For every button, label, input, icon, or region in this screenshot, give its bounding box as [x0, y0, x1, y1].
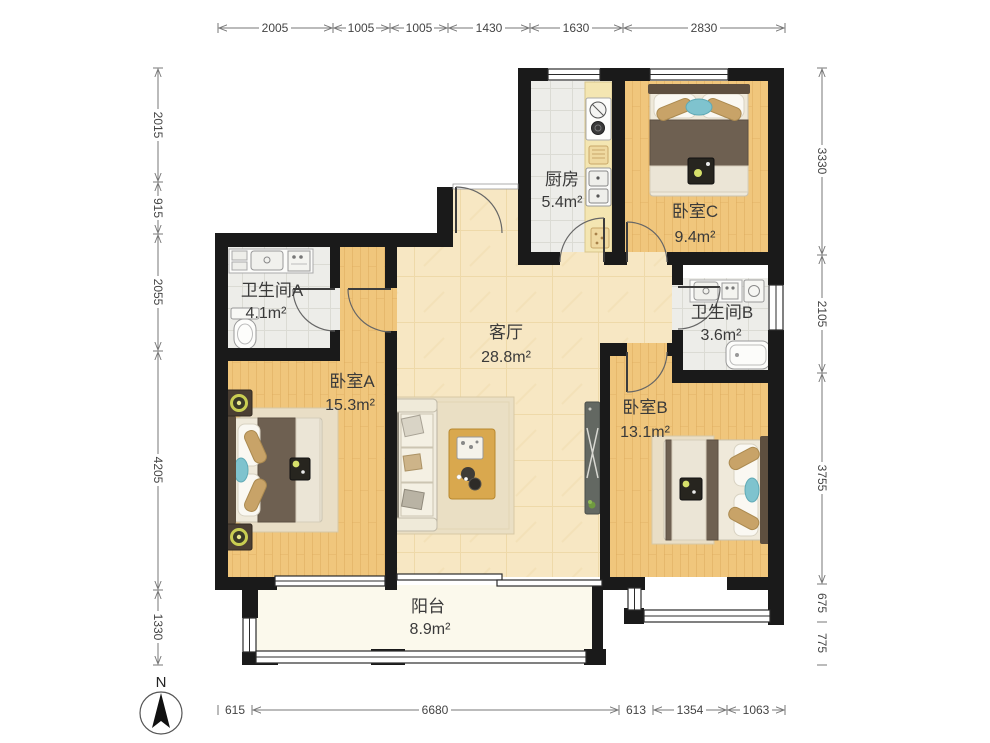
- dim-top-5: 1630: [563, 21, 590, 35]
- bath-b-area: 3.6m²: [701, 327, 743, 344]
- bedroom-b-area: 13.1m²: [620, 424, 670, 441]
- kitchen-counter: [585, 82, 612, 252]
- bath-a-door-gap: [330, 288, 340, 330]
- bedroom-a-balcony-window: [275, 576, 385, 586]
- dim-left-2: 915: [151, 198, 165, 218]
- balcony-left-window: [243, 618, 256, 652]
- nightstand-icon: [226, 524, 252, 550]
- hallway-floor: [602, 252, 672, 343]
- bath-a-label: 卫生间A: [241, 281, 304, 300]
- dim-bottom-3: 613: [626, 703, 646, 717]
- bedroom-a-label: 卧室A: [329, 372, 375, 391]
- entry-threshold: [453, 184, 518, 189]
- bath-b-window: [769, 285, 783, 330]
- bedroom-b-door-gap: [627, 343, 667, 356]
- dimension-right: 3330 2105 3755 675 775: [815, 68, 829, 665]
- tv-panel: [585, 402, 600, 514]
- dim-bottom-2: 6680: [422, 703, 449, 717]
- bed-bedroom-c: [648, 84, 750, 196]
- nightstand-icon: [226, 390, 252, 416]
- dim-left-5: 1330: [151, 614, 165, 641]
- dim-right-5: 775: [815, 633, 829, 653]
- balcony-front-window: [256, 651, 586, 663]
- balcony-area: 8.9m²: [410, 621, 452, 638]
- dimension-bottom: 615 6680 613 1354 1063: [218, 703, 785, 717]
- bath-b-door-gap: [672, 285, 683, 330]
- dim-right-1: 3330: [815, 148, 829, 175]
- living-label: 客厅: [489, 323, 523, 342]
- compass-north-label: N: [156, 674, 167, 691]
- bedroom-c-window: [650, 69, 728, 80]
- compass: N: [140, 674, 182, 734]
- dim-left-1: 2015: [151, 112, 165, 139]
- balcony-floor: [245, 585, 592, 652]
- kitchen-label: 厨房: [545, 170, 579, 189]
- bedroom-b-label: 卧室B: [622, 398, 667, 417]
- kitchen-sink-icon: [586, 168, 611, 206]
- bed-bedroom-a: [226, 390, 338, 550]
- bedroom-a-area: 15.3m²: [325, 397, 375, 414]
- coffee-table: [449, 429, 495, 499]
- bedroom-a-door-gap: [385, 288, 397, 331]
- compass-needle-icon: [152, 693, 170, 728]
- dim-top-2: 1005: [348, 21, 375, 35]
- balcony-label: 阳台: [411, 597, 445, 616]
- floorplan-svg: 厨房 5.4m² 卧室C 9.4m² 卫生间A 4.1m² 客厅 28.8m² …: [0, 0, 990, 743]
- dim-left-3: 2055: [151, 279, 165, 306]
- dim-top-3: 1005: [406, 21, 433, 35]
- dim-bottom-4: 1354: [677, 703, 704, 717]
- counter-board-icon: [591, 228, 609, 248]
- dim-bottom-5: 1063: [743, 703, 770, 717]
- dimension-top: 2005 1005 1005 1430 1630 2830: [218, 21, 785, 35]
- dim-top-6: 2830: [691, 21, 718, 35]
- dim-left-4: 4205: [151, 457, 165, 484]
- cutting-board-icon: [589, 146, 608, 164]
- stove-icon: [586, 98, 611, 140]
- dim-bottom-1: 615: [225, 703, 245, 717]
- dim-top-4: 1430: [476, 21, 503, 35]
- living-area: 28.8m²: [481, 349, 531, 366]
- bedroom-c-area: 9.4m²: [675, 229, 717, 246]
- bedroom-c-label: 卧室C: [672, 202, 718, 221]
- dim-right-3: 3755: [815, 465, 829, 492]
- bath-a-vanity: [229, 249, 313, 273]
- bed-bedroom-b: [652, 436, 770, 544]
- bedroom-b-bay-window: [644, 610, 770, 622]
- bath-b-vanity: [690, 280, 742, 302]
- sofa: [391, 399, 437, 531]
- kitchen-area: 5.4m²: [542, 194, 584, 211]
- dim-right-4: 675: [815, 593, 829, 613]
- dim-top-1: 2005: [262, 21, 289, 35]
- floorplan-page: 厨房 5.4m² 卧室C 9.4m² 卫生间A 4.1m² 客厅 28.8m² …: [0, 0, 990, 743]
- dim-right-2: 2105: [815, 301, 829, 328]
- bathtub-icon: [726, 341, 770, 369]
- bath-a-area: 4.1m²: [246, 305, 288, 322]
- washing-machine-icon: [744, 280, 764, 302]
- bath-b-label: 卫生间B: [691, 303, 753, 322]
- dimension-left: 2015 915 2055 4205 1330: [151, 68, 165, 665]
- bedroom-b-bay-side-window: [628, 588, 641, 610]
- bedroom-a-corridor-floor: [340, 247, 385, 361]
- kitchen-window: [548, 69, 600, 80]
